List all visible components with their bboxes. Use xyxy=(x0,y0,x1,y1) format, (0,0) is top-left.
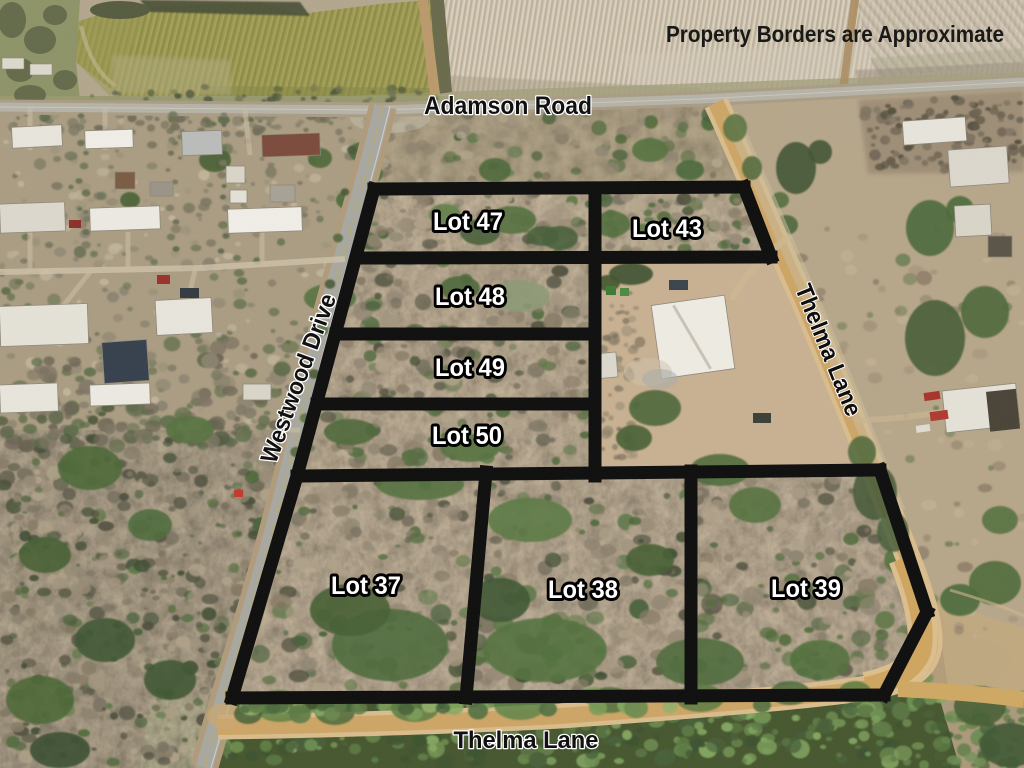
svg-text:Lot 50: Lot 50 xyxy=(432,422,502,450)
svg-text:Lot 49: Lot 49 xyxy=(435,354,505,382)
svg-text:Lot 39: Lot 39 xyxy=(771,575,841,603)
svg-text:Adamson Road: Adamson Road xyxy=(424,92,592,120)
svg-text:Lot 47: Lot 47 xyxy=(433,208,503,236)
svg-text:Lot 48: Lot 48 xyxy=(435,283,505,311)
svg-text:Lot 37: Lot 37 xyxy=(331,572,401,600)
svg-text:Property Borders are Approxima: Property Borders are Approximate xyxy=(666,21,1004,47)
svg-text:Lot 38: Lot 38 xyxy=(548,576,618,604)
svg-text:Thelma Lane: Thelma Lane xyxy=(454,727,599,754)
svg-text:Lot 43: Lot 43 xyxy=(632,215,702,243)
